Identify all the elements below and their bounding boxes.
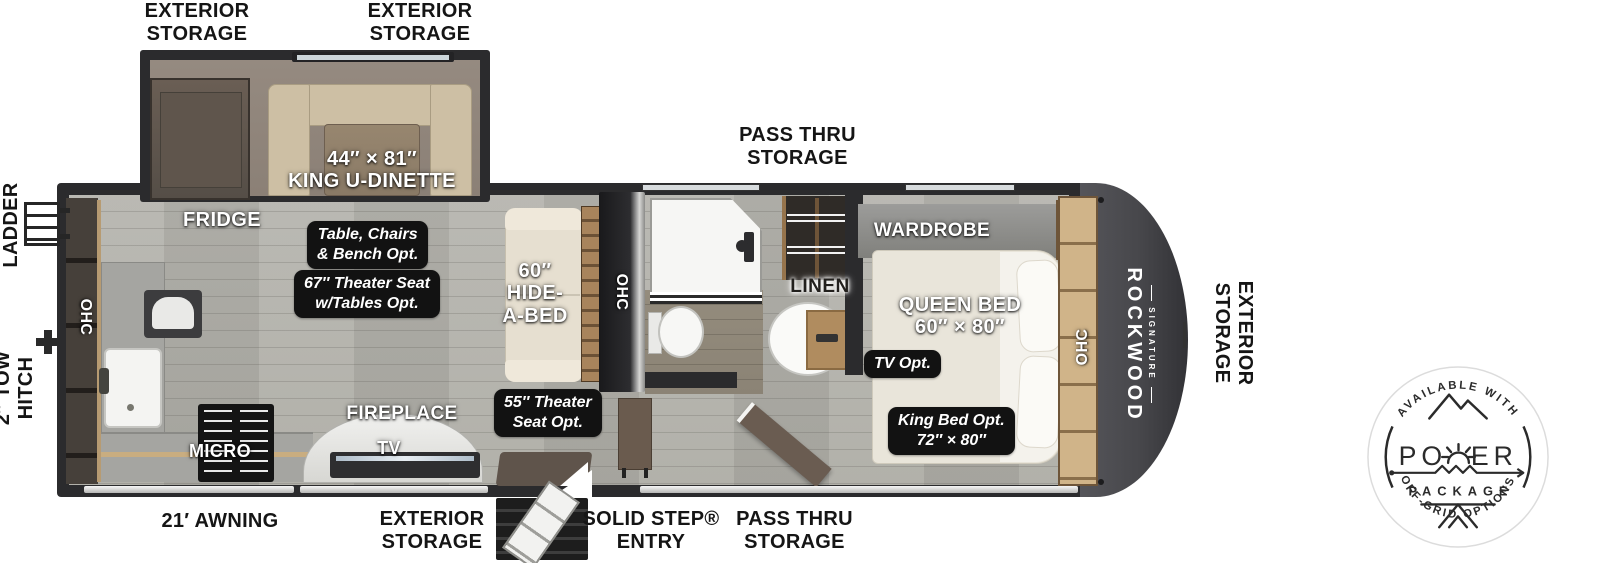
kitchen-sink: [104, 348, 162, 428]
cap-screw-bottom: [1098, 479, 1104, 485]
awning-rail-2: [300, 486, 488, 493]
label-ohc-kitchen: OHC: [73, 287, 97, 347]
cap-brand-make: ROCKWOOD: [1122, 215, 1146, 475]
label-step-entry: SOLID STEP® ENTRY: [568, 508, 734, 554]
ladder-bracket-bottom: [58, 234, 70, 239]
label-awning: 21′ AWNING: [138, 510, 302, 533]
shower-door-track: [650, 292, 762, 304]
fridge-door-line: [160, 92, 242, 188]
slideout-window-glass: [297, 55, 449, 60]
sink-faucet: [99, 368, 109, 394]
label-dinette: 44″ × 81″ KING U-DINETTE: [282, 148, 462, 193]
option-king-bed: King Bed Opt. 72″ × 80″: [888, 407, 1015, 455]
cap-tick: [1183, 322, 1186, 348]
floorplan-diagram: ROCKWOOD SIGNATURE FRIDGE 44″ × 81″ KING…: [0, 0, 1600, 563]
awning-rail-1: [84, 486, 294, 493]
label-pass-thru-bottom: PASS THRU STORAGE: [712, 508, 877, 554]
badge-word-left: PO: [1399, 441, 1447, 471]
pillow-bottom: [1016, 355, 1063, 449]
label-exterior-storage-top-mid: EXTERIOR STORAGE: [338, 0, 502, 46]
sofa-back-crates: [581, 206, 601, 382]
brand-series-text: SIGNATURE: [1148, 307, 1157, 381]
option-theater-55: 55″ Theater Seat Opt.: [494, 389, 602, 437]
linen-shelf-1a: [787, 214, 851, 216]
label-ladder: LADDER: [0, 175, 24, 275]
linen-shelf-2b: [787, 252, 851, 254]
label-tv: TV: [359, 438, 419, 458]
label-ohc-living: OHC: [609, 262, 633, 322]
shower-head-knob: [736, 240, 748, 252]
linen-divider: [815, 198, 819, 278]
label-fridge: FRIDGE: [174, 209, 270, 231]
bath-window: [642, 184, 760, 191]
side-table-leg-right: [644, 468, 648, 478]
label-exterior-storage-top-left: EXTERIOR STORAGE: [115, 0, 279, 46]
bedroom-window: [905, 184, 1015, 191]
side-table-leg-left: [622, 468, 626, 478]
badge-word-right: ER: [1471, 441, 1518, 471]
kitchen-appliance-top: [152, 297, 194, 329]
label-linen: LINEN: [778, 276, 862, 298]
label-exterior-storage-right: EXTERIOR STORAGE: [1208, 251, 1256, 415]
label-pass-thru-top: PASS THRU STORAGE: [710, 124, 885, 170]
label-ohc-bedroom: OHC: [1071, 317, 1095, 377]
label-exterior-storage-bottom: EXTERIOR STORAGE: [350, 508, 514, 554]
awning-rail-3: [640, 486, 1078, 493]
cap-brand-series: SIGNATURE: [1144, 264, 1160, 424]
label-tow-hitch: 2″ TOW HITCH: [0, 338, 40, 438]
label-fireplace: FIREPLACE: [327, 403, 477, 424]
label-queen-bed: QUEEN BED 60″ × 80″: [878, 294, 1042, 339]
brand-make-text: ROCKWOOD: [1123, 267, 1146, 422]
label-micro: MICRO: [178, 441, 262, 461]
sink-drain: [127, 404, 134, 411]
label-hide-a-bed: 60″ HIDE- A-BED: [495, 260, 575, 327]
vanity-faucet: [816, 334, 838, 342]
toilet-bowl: [658, 306, 704, 358]
ladder-bracket-top: [58, 208, 70, 213]
option-dinette: Table, Chairs & Bench Opt.: [307, 221, 428, 269]
label-wardrobe: WARDROBE: [862, 220, 1002, 241]
option-theater-67: 67″ Theater Seat w/Tables Opt.: [294, 270, 440, 318]
sofa-arm-top: [505, 208, 583, 230]
linen-shelf-2a: [787, 246, 851, 248]
power-package-badge: AVAILABLE WITH PO ER PACKAGE OFF-GRID OP…: [1364, 363, 1552, 551]
hall-side-table: [618, 398, 652, 470]
linen-shelf-1b: [787, 220, 851, 222]
sofa-arm-bottom: [505, 360, 583, 382]
cap-screw-top: [1098, 197, 1104, 203]
bathroom-half-wall: [645, 372, 737, 388]
option-tv: TV Opt.: [864, 350, 941, 378]
brand-series-rule-left: [1152, 285, 1153, 301]
ladder-graphic: [24, 202, 60, 246]
brand-series-rule-right: [1152, 387, 1153, 403]
